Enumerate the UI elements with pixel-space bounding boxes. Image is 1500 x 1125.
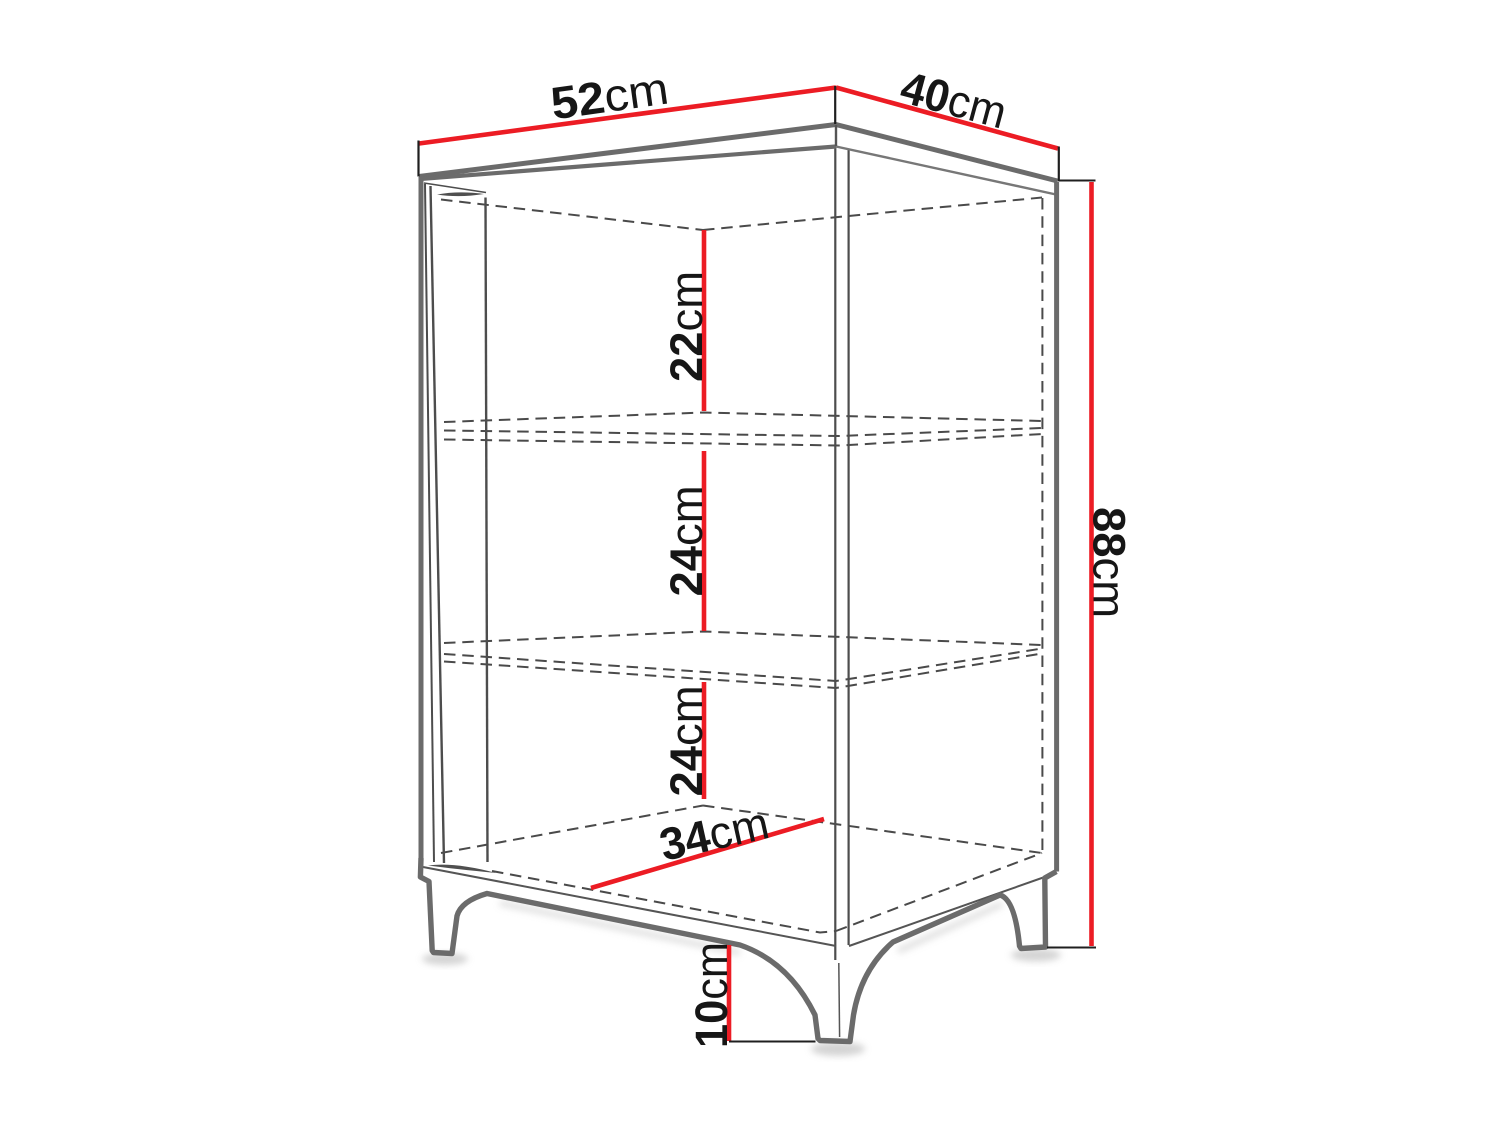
svg-text:52cm: 52cm — [548, 63, 672, 130]
svg-text:10cm: 10cm — [686, 942, 737, 1048]
svg-text:40cm: 40cm — [895, 61, 1012, 138]
svg-text:34cm: 34cm — [655, 797, 773, 871]
svg-text:24cm: 24cm — [661, 686, 712, 797]
svg-text:22cm: 22cm — [661, 271, 712, 382]
svg-text:24cm: 24cm — [661, 486, 712, 597]
svg-text:88cm: 88cm — [1084, 507, 1135, 618]
